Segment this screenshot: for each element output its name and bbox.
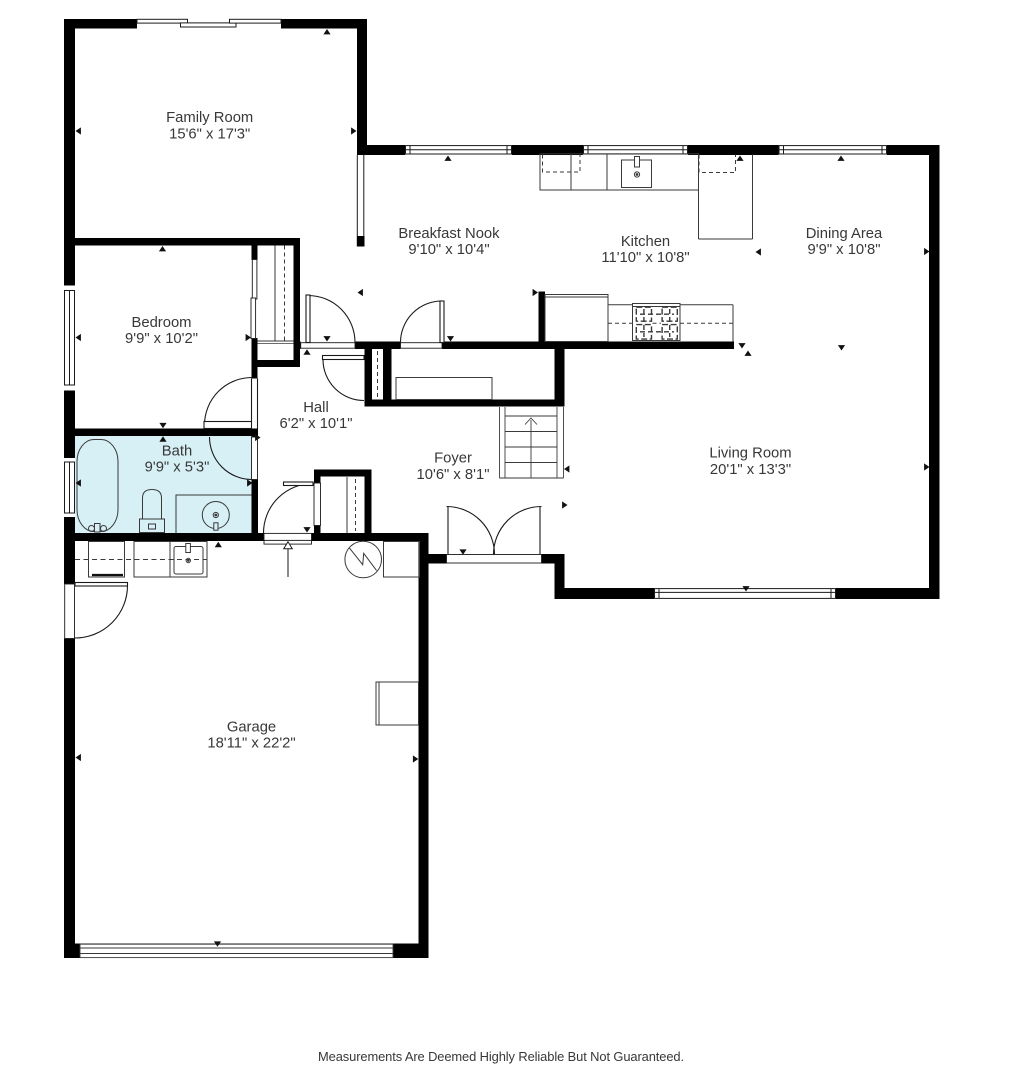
svg-text:15'6" x 17'3": 15'6" x 17'3" [169, 126, 250, 142]
svg-text:9'9" x 10'8": 9'9" x 10'8" [808, 242, 881, 258]
svg-text:6'2" x 10'1": 6'2" x 10'1" [280, 416, 353, 432]
svg-text:Hall: Hall [303, 400, 329, 416]
svg-text:20'1" x 13'3": 20'1" x 13'3" [710, 462, 791, 478]
svg-text:Dining Area: Dining Area [806, 226, 883, 242]
svg-text:18'11" x 22'2": 18'11" x 22'2" [207, 736, 295, 752]
svg-text:Bedroom: Bedroom [131, 315, 191, 331]
svg-text:Bath: Bath [162, 443, 192, 459]
svg-text:11'10" x 10'8": 11'10" x 10'8" [601, 250, 689, 266]
svg-text:Kitchen: Kitchen [621, 234, 670, 250]
svg-text:Family Room: Family Room [166, 110, 253, 126]
svg-text:10'6" x 8'1": 10'6" x 8'1" [417, 467, 490, 483]
svg-text:Living Room: Living Room [709, 446, 791, 462]
svg-text:Foyer: Foyer [434, 451, 472, 467]
svg-text:9'9" x 5'3": 9'9" x 5'3" [145, 460, 210, 476]
svg-text:Breakfast Nook: Breakfast Nook [398, 226, 500, 242]
svg-text:Garage: Garage [227, 720, 276, 736]
svg-text:9'10" x 10'4": 9'10" x 10'4" [408, 242, 489, 258]
svg-text:9'9" x 10'2": 9'9" x 10'2" [125, 331, 198, 347]
svg-text:Measurements Are Deemed Highly: Measurements Are Deemed Highly Reliable … [318, 1049, 684, 1064]
